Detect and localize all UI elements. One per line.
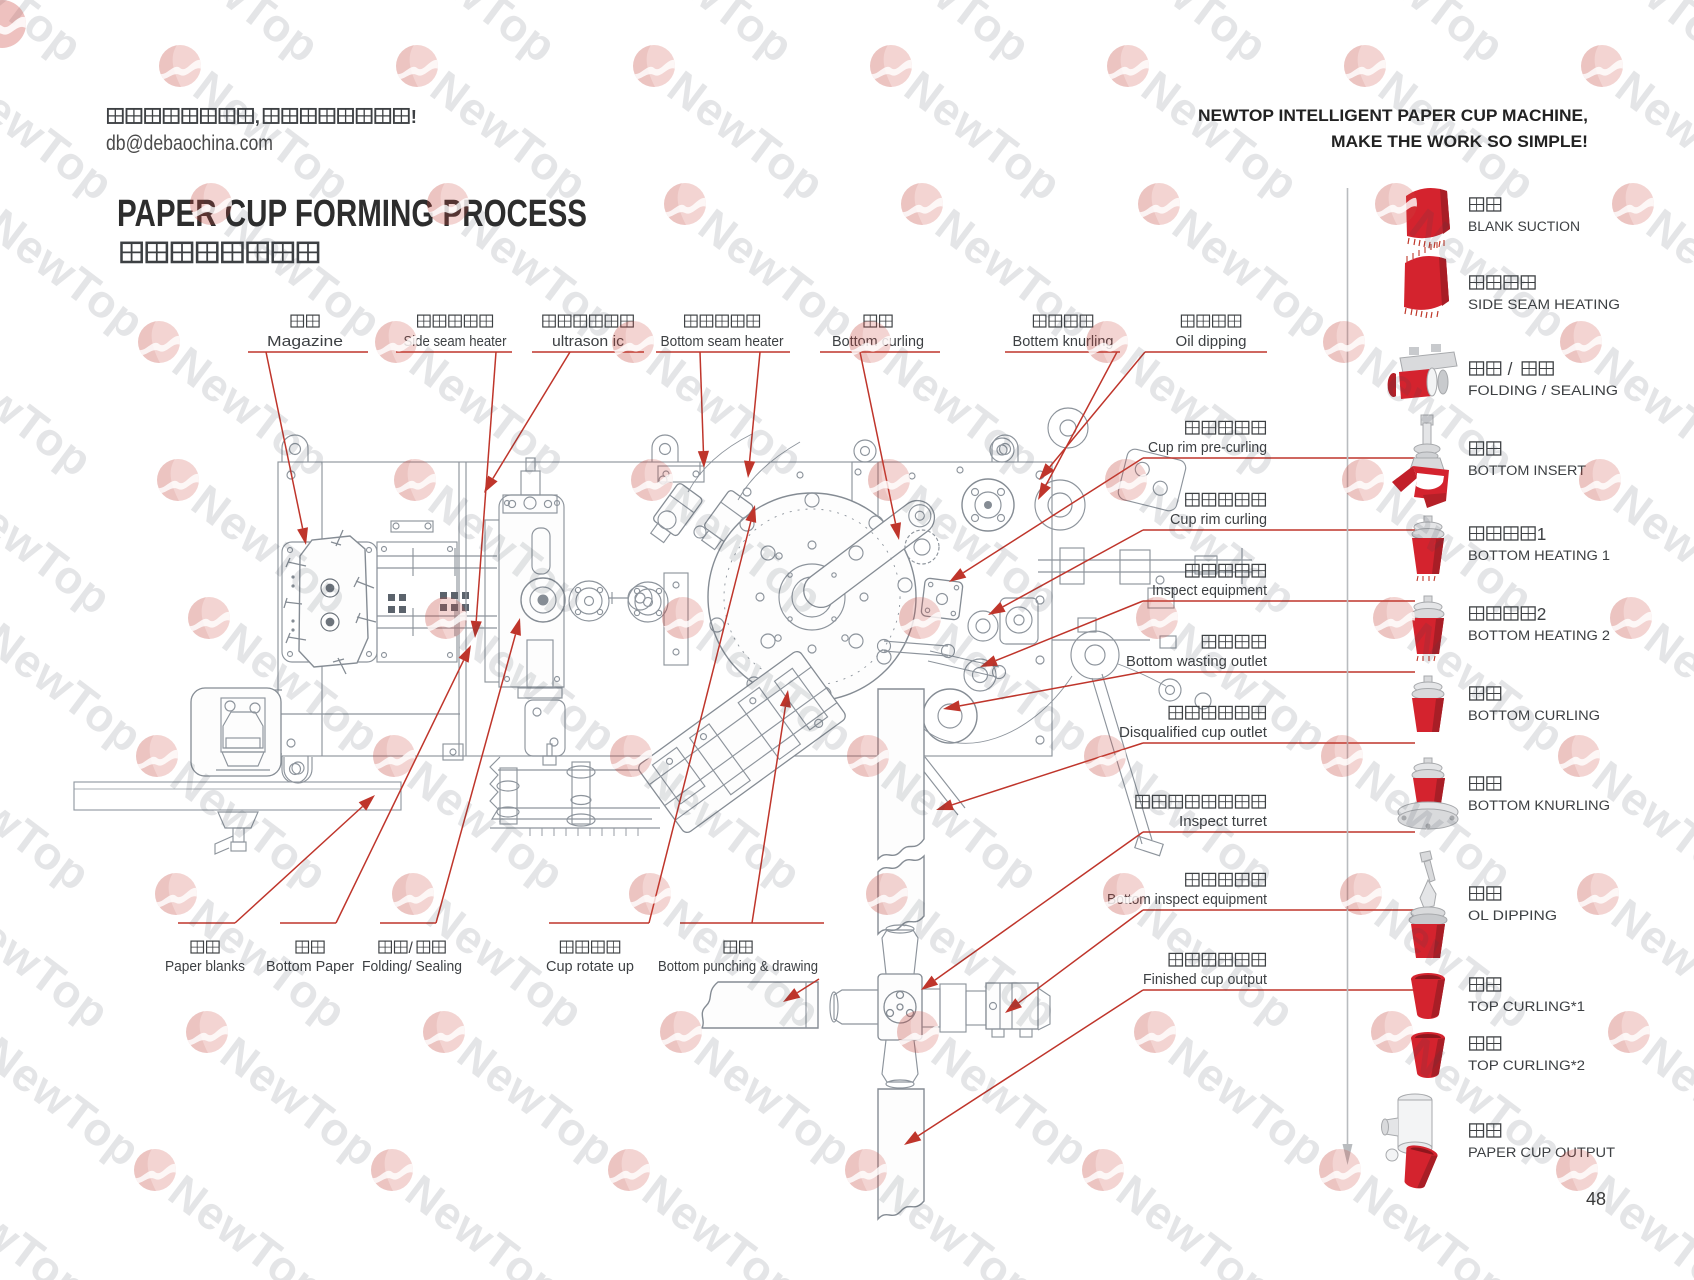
svg-text:/: / [409,940,414,957]
svg-text:Folding/ Sealing: Folding/ Sealing [362,959,462,975]
svg-text:BLANK SUCTION: BLANK SUCTION [1468,219,1580,235]
svg-text:BOTTOM HEATING 2: BOTTOM HEATING 2 [1468,628,1610,644]
svg-text:Disqualified cup outlet: Disqualified cup outlet [1119,724,1268,741]
svg-text:Oil dipping: Oil dipping [1176,334,1247,350]
svg-text:Side seam heater: Side seam heater [404,334,507,350]
svg-text:/: / [1508,359,1513,379]
svg-text:!: ! [411,106,417,127]
svg-text:1: 1 [1537,524,1547,544]
svg-text:BOTTOM KNURLING: BOTTOM KNURLING [1468,798,1610,814]
svg-text:OL DIPPING: OL DIPPING [1468,908,1557,924]
svg-text:2: 2 [1537,604,1547,624]
svg-text:Magazine: Magazine [267,334,343,350]
